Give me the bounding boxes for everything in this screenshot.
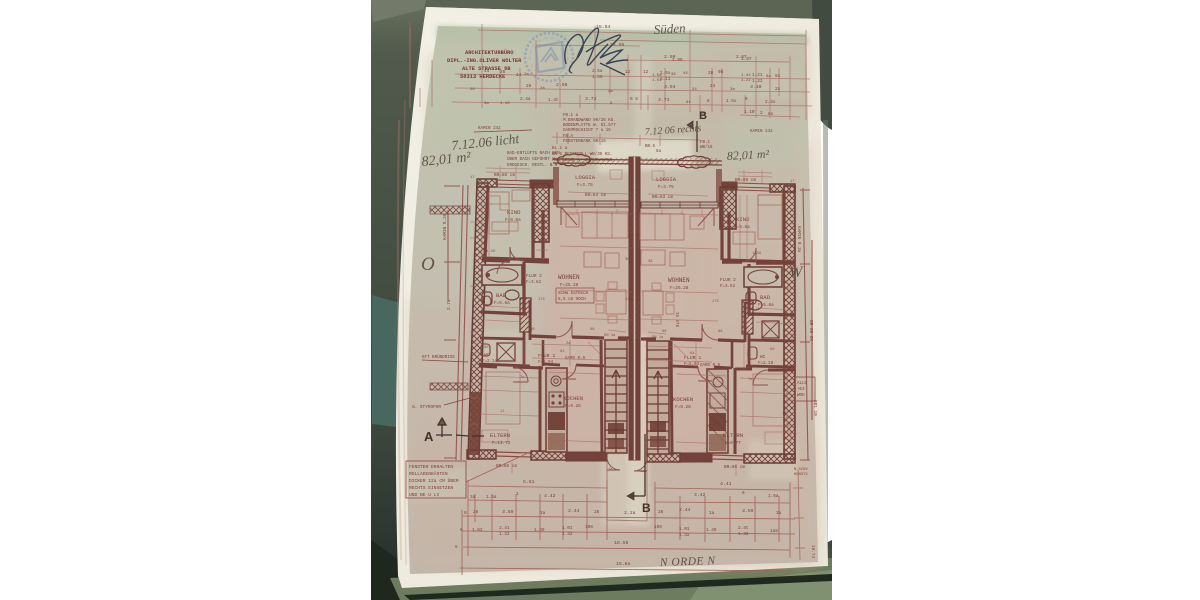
svg-text:BR 09 OK: BR 09 OK: [808, 320, 813, 341]
svg-text:KOCHEN: KOCHEN: [673, 396, 693, 403]
svg-text:108: 108: [585, 525, 593, 530]
svg-text:38: 38: [671, 73, 676, 77]
svg-text:1a: 1a: [709, 511, 715, 516]
svg-text:F=3.62: F=3.62: [526, 281, 542, 285]
svg-text:1.21: 1.21: [752, 73, 763, 78]
svg-text:BR=63 cm: BR=63 cm: [585, 193, 606, 198]
svg-text:FB.A: FB.A: [563, 135, 574, 139]
svg-text:WOHNEN: WOHNEN: [668, 277, 690, 284]
svg-text:1.32: 1.32: [679, 533, 690, 538]
svg-text:1: 1: [516, 492, 519, 497]
svg-text:1.32: 1.32: [562, 532, 573, 537]
svg-text:1.10: 1.10: [500, 102, 510, 106]
svg-text:4.41: 4.41: [720, 481, 732, 487]
svg-text:1.41: 1.41: [741, 74, 751, 78]
svg-text:ROLLADENKÄSTEN: ROLLADENKÄSTEN: [409, 470, 448, 477]
svg-text:1.49: 1.49: [534, 528, 545, 533]
svg-text:3.72: 3.72: [585, 96, 597, 102]
svg-text:8: 8: [707, 99, 710, 104]
svg-text:B: B: [699, 110, 707, 122]
svg-text:3a: 3a: [776, 511, 782, 516]
svg-text:3.59: 3.59: [502, 509, 514, 515]
svg-text:1.01: 1.01: [679, 527, 690, 532]
svg-text:BODENPLATTE W. 51.577: BODENPLATTE W. 51.577: [563, 124, 616, 128]
svg-text:F=3.62: F=3.62: [720, 285, 736, 289]
svg-text:FLUR 2: FLUR 2: [720, 278, 736, 283]
svg-text:WC: WC: [760, 355, 766, 360]
svg-text:BL.5: BL.5: [690, 165, 700, 169]
svg-text:BL.1 a: BL.1 a: [552, 147, 568, 151]
svg-text:15.6a: 15.6a: [616, 561, 631, 567]
svg-text:88: 88: [530, 328, 535, 332]
svg-text:36: 36: [625, 258, 630, 262]
svg-text:18.55: 18.55: [614, 540, 629, 546]
svg-text:1.5x: 1.5x: [726, 99, 737, 104]
svg-text:17: 17: [790, 180, 795, 184]
svg-text:F=9.28: F=9.28: [675, 405, 691, 410]
svg-text:1.49: 1.49: [706, 528, 717, 533]
svg-text:WB/15: WB/15: [700, 145, 713, 150]
svg-text:RECHTS EINSETZEN: RECHTS EINSETZEN: [409, 485, 453, 491]
svg-text:DIPL.-ING.OLIVER WOLTER: DIPL.-ING.OLIVER WOLTER: [447, 58, 522, 64]
svg-text:3.73: 3.73: [658, 97, 670, 103]
svg-text:ALTE STRASSE 9B: ALTE STRASSE 9B: [462, 66, 511, 72]
svg-text:2.41: 2.41: [499, 526, 510, 531]
svg-text:KIND: KIND: [507, 209, 521, 216]
svg-text:1a: 1a: [640, 470, 645, 474]
svg-text:F=0.77: F=0.77: [725, 441, 741, 446]
svg-text:6: 6: [460, 528, 463, 533]
svg-text:8x: 8x: [768, 112, 774, 117]
svg-text:2a: 2a: [524, 73, 529, 77]
svg-text:44: 44: [683, 72, 688, 76]
svg-text:175: 175: [712, 300, 720, 304]
svg-text:2.98: 2.98: [556, 82, 568, 88]
svg-text:FB.1: FB.1: [700, 141, 711, 145]
svg-text:11a: 11a: [540, 220, 548, 224]
svg-text:98: 98: [718, 70, 724, 75]
svg-text:108: 108: [654, 525, 662, 530]
svg-text:ELTERN: ELTERN: [490, 432, 510, 439]
svg-text:DICKER 12a CM ÜBER: DICKER 12a CM ÜBER: [409, 477, 459, 484]
svg-text:F=9.6a: F=9.6a: [505, 218, 521, 223]
svg-text:90: 90: [770, 348, 775, 352]
svg-text:7a: 7a: [520, 376, 525, 380]
svg-text:F=2.1a: F=2.1a: [482, 360, 498, 364]
svg-text:F=3.75: F=3.75: [577, 183, 593, 188]
svg-text:KAMIN 9.3a: KAMIN 9.3a: [796, 226, 801, 253]
svg-text:F=25.28: F=25.28: [670, 286, 689, 291]
svg-text:26: 26: [473, 510, 479, 515]
svg-text:DAEMMSCHICHT 7 a 15: DAEMMSCHICHT 7 a 15: [563, 129, 611, 133]
svg-text:12: 12: [643, 70, 649, 75]
svg-text:BL.5: BL.5: [580, 163, 590, 167]
svg-text:1.32: 1.32: [499, 532, 510, 537]
svg-text:2.4t: 2.4t: [738, 526, 749, 531]
svg-text:KAMIN 9.36: KAMIN 9.36: [443, 213, 448, 240]
svg-text:LOGGIA: LOGGIA: [575, 174, 596, 181]
svg-text:9: 9: [455, 545, 458, 550]
svg-text:64: 64: [690, 352, 695, 356]
svg-text:BR=88 cm: BR=88 cm: [494, 173, 515, 178]
svg-text:1.4t: 1.4t: [548, 98, 559, 103]
svg-text:BB.5: BB.5: [645, 145, 656, 149]
svg-text:12: 12: [625, 70, 631, 75]
svg-text:F=9.6a: F=9.6a: [734, 225, 750, 230]
svg-text:FENSTERBANK 90/15: FENSTERBANK 90/15: [563, 139, 606, 144]
svg-text:F=3.75: F=3.75: [658, 185, 674, 190]
svg-text:ALLE: ALLE: [797, 382, 808, 386]
svg-text:2.11: 2.11: [660, 77, 671, 82]
svg-text:16.74: 16.74: [810, 545, 815, 559]
svg-text:5.61: 5.61: [523, 479, 535, 485]
svg-text:26: 26: [470, 88, 475, 92]
svg-text:KFT BRÜNDRISS: KFT BRÜNDRISS: [422, 355, 455, 360]
svg-text:KOCHEN: KOCHEN: [563, 395, 583, 402]
svg-text:26: 26: [594, 510, 600, 515]
svg-text:1.99: 1.99: [672, 58, 683, 63]
svg-text:m. STYROPOR: m. STYROPOR: [412, 405, 441, 410]
svg-text:3.10: 3.10: [750, 84, 762, 90]
svg-text:1.10: 1.10: [744, 110, 755, 115]
svg-text:KAMIN 242: KAMIN 242: [750, 130, 773, 134]
svg-text:GARD 0.5: GARD 0.5: [700, 364, 721, 368]
svg-text:O: O: [421, 254, 435, 275]
svg-text:2a: 2a: [566, 342, 571, 346]
svg-text:M.BRANDWAND 90/35 KS.: M.BRANDWAND 90/35 KS.: [563, 118, 616, 123]
svg-text:N.SCHV: N.SCHV: [794, 468, 808, 472]
svg-text:4.42: 4.42: [694, 492, 706, 498]
svg-text:DN 1a: DN 1a: [604, 334, 616, 338]
svg-text:W: W: [789, 264, 804, 281]
svg-text:FENSTER ERHALTEN: FENSTER ERHALTEN: [409, 464, 453, 470]
svg-text:1.22: 1.22: [752, 79, 763, 84]
svg-text:6: 6: [742, 491, 745, 496]
svg-text:1.38: 1.38: [486, 250, 496, 254]
svg-text:2a: 2a: [540, 87, 545, 91]
svg-text:3.59: 3.59: [742, 508, 754, 514]
svg-text:FLUR 2: FLUR 2: [526, 274, 542, 279]
svg-text:BR=88 cm: BR=88 cm: [735, 178, 756, 183]
svg-text:11: 11: [782, 412, 787, 416]
svg-text:B: B: [642, 501, 651, 515]
svg-text:24: 24: [692, 88, 697, 92]
svg-text:3.94: 3.94: [664, 84, 676, 90]
svg-text:BAD: BAD: [496, 292, 507, 299]
svg-text:68: 68: [590, 328, 595, 332]
svg-text:1.51: 1.51: [652, 79, 662, 83]
svg-text:5a: 5a: [656, 150, 662, 154]
svg-text:F=5.94: F=5.94: [684, 363, 700, 367]
svg-text:BR 5 BETONROLL WB/35 KS.: BR 5 BETONROLL WB/35 KS.: [552, 152, 612, 157]
svg-text:WOHNEN: WOHNEN: [558, 274, 580, 281]
svg-text:+E3: +E3: [797, 388, 805, 392]
svg-text:24: 24: [625, 298, 630, 302]
svg-text:F=5.94: F=5.94: [538, 361, 554, 365]
svg-text:175: 175: [538, 298, 546, 302]
svg-text:14: 14: [516, 73, 522, 78]
svg-text:11: 11: [500, 410, 505, 414]
svg-text:LOGGIA: LOGGIA: [656, 176, 677, 183]
svg-text:58313 HERDECKE: 58313 HERDECKE: [460, 74, 506, 80]
svg-text:1.32: 1.32: [738, 532, 749, 537]
svg-text:1.55: 1.55: [592, 75, 603, 80]
svg-text:BR=86 cm: BR=86 cm: [724, 465, 745, 470]
svg-text:F=2.18: F=2.18: [758, 362, 774, 366]
svg-text:28: 28: [708, 71, 714, 76]
svg-text:7a: 7a: [748, 378, 753, 382]
svg-text:1.6a: 1.6a: [768, 494, 779, 499]
svg-text:26: 26: [658, 510, 664, 515]
svg-text:2a: 2a: [608, 90, 613, 94]
svg-text:17: 17: [470, 176, 475, 180]
svg-text:BR1 19: BR1 19: [812, 400, 817, 416]
svg-text:2.44: 2.44: [568, 508, 580, 514]
svg-text:2.76: 2.76: [447, 299, 452, 310]
svg-text:KONST2: KONST2: [794, 473, 808, 477]
svg-text:3a: 3a: [730, 88, 735, 92]
svg-text:15 STG: 15 STG: [630, 314, 634, 330]
svg-text:BR=63 cm: BR=63 cm: [652, 195, 673, 200]
svg-text:8,5 cm HOCH: 8,5 cm HOCH: [558, 298, 586, 302]
svg-text:ÜBER DACH GEFÜHRT W.: ÜBER DACH GEFÜHRT W.: [507, 157, 557, 162]
svg-text:F=25.28: F=25.28: [560, 283, 579, 288]
svg-text:FB.1 a: FB.1 a: [563, 114, 579, 118]
svg-text:8a: 8a: [766, 75, 771, 79]
svg-text:Süden: Süden: [653, 20, 686, 37]
svg-text:SCHW ESTRICH: SCHW ESTRICH: [558, 292, 589, 296]
svg-text:36: 36: [648, 260, 653, 264]
svg-text:8x: 8x: [775, 74, 781, 79]
svg-text:3a: 3a: [470, 495, 476, 500]
svg-text:1.87: 1.87: [741, 57, 752, 62]
svg-text:1.38: 1.38: [752, 252, 762, 256]
svg-text:BAD: BAD: [760, 294, 771, 301]
svg-text:1.01: 1.01: [562, 526, 573, 531]
svg-text:1.5a: 1.5a: [652, 74, 662, 78]
svg-text:1.5a: 1.5a: [486, 495, 497, 500]
svg-text:A: A: [424, 429, 434, 444]
svg-text:2.4a: 2.4a: [520, 97, 531, 102]
svg-text:88: 88: [718, 330, 723, 334]
svg-text:3a: 3a: [484, 102, 489, 106]
svg-text:UND BE U LI: UND BE U LI: [409, 492, 440, 498]
svg-text:N ORDE N: N ORDE N: [659, 555, 717, 569]
svg-text:90: 90: [484, 346, 489, 350]
svg-text:F=13.72: F=13.72: [492, 441, 511, 446]
svg-text:BR=66 cm: BR=66 cm: [496, 464, 517, 469]
svg-text:1a: 1a: [608, 468, 613, 472]
svg-text:1.62: 1.62: [472, 528, 483, 533]
svg-text:1.22: 1.22: [741, 79, 751, 83]
svg-text:8 8: 8 8: [630, 97, 638, 102]
svg-text:68: 68: [662, 330, 667, 334]
svg-text:4.42: 4.42: [544, 493, 556, 499]
svg-text:82,01 m²: 82,01 m²: [726, 147, 769, 163]
svg-text:ELTERN: ELTERN: [723, 432, 743, 439]
svg-text:2.4x: 2.4x: [765, 100, 776, 105]
svg-text:ERDGESCH. RESTL. N.N: ERDGESCH. RESTL. N.N: [507, 164, 558, 168]
svg-text:2.5a: 2.5a: [592, 69, 603, 74]
svg-text:WC: WC: [484, 353, 490, 358]
svg-text:8: 8: [464, 511, 467, 516]
svg-text:5: 5: [417, 43, 420, 48]
svg-text:26: 26: [526, 84, 532, 89]
svg-text:F=5.6a: F=5.6a: [494, 301, 510, 306]
svg-text:1.5x: 1.5x: [660, 71, 671, 76]
svg-text:KAMIN 242: KAMIN 242: [478, 127, 501, 131]
svg-text:2: 2: [760, 111, 763, 116]
svg-text:64: 64: [560, 350, 565, 354]
svg-text:KIND: KIND: [736, 216, 750, 223]
svg-text:DN 1a: DN 1a: [652, 336, 664, 340]
svg-text:8t: 8t: [686, 101, 691, 105]
svg-text:1a: 1a: [540, 511, 546, 516]
svg-text:ARCHITEKTURBÜRO: ARCHITEKTURBÜRO: [465, 49, 514, 56]
svg-text:2.2a: 2.2a: [624, 510, 636, 516]
svg-text:2x: 2x: [775, 87, 781, 92]
svg-text:F=5.6a: F=5.6a: [758, 303, 774, 308]
svg-text:9: 9: [745, 97, 748, 102]
svg-text:2.44: 2.44: [679, 507, 691, 513]
svg-text:F=9.28: F=9.28: [565, 404, 581, 409]
svg-text:1a8: 1a8: [770, 529, 778, 534]
svg-text:24: 24: [710, 84, 716, 89]
svg-text:WOH: WOH: [797, 394, 805, 398]
